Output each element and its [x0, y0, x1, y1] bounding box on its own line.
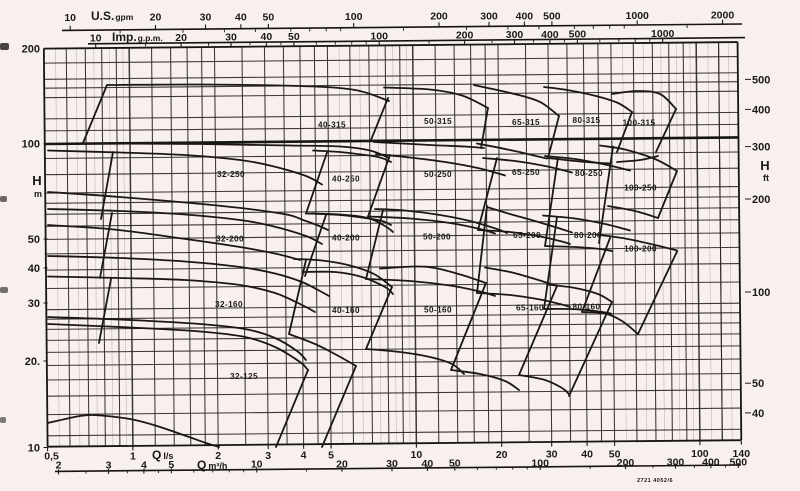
svg-text:20: 20: [150, 12, 162, 24]
svg-text:100-200: 100-200: [624, 244, 657, 253]
svg-text:Qm³/h: Qm³/h: [197, 458, 227, 472]
svg-text:50: 50: [263, 11, 275, 23]
svg-text:80-250: 80-250: [575, 169, 603, 178]
svg-text:50-200: 50-200: [423, 233, 451, 242]
svg-text:200: 200: [430, 11, 448, 23]
svg-text:1000: 1000: [651, 28, 675, 40]
svg-text:50-160: 50-160: [424, 306, 452, 315]
svg-text:Imp.g.p.m.: Imp.g.p.m.: [112, 30, 163, 44]
svg-text:65-315: 65-315: [512, 118, 540, 127]
svg-text:1: 1: [130, 450, 136, 462]
svg-text:40-160: 40-160: [332, 306, 360, 315]
svg-text:40: 40: [28, 263, 40, 275]
svg-text:80-315: 80-315: [573, 116, 601, 125]
svg-text:40-250: 40-250: [332, 175, 360, 184]
svg-text:300: 300: [480, 11, 498, 23]
svg-text:30: 30: [225, 32, 237, 44]
svg-text:65-160: 65-160: [516, 303, 544, 312]
svg-text:100: 100: [370, 30, 388, 42]
svg-text:50-315: 50-315: [424, 117, 452, 126]
svg-text:400: 400: [752, 104, 770, 116]
svg-text:65-200: 65-200: [513, 231, 541, 240]
svg-text:4: 4: [301, 450, 307, 462]
svg-text:10: 10: [64, 12, 76, 24]
svg-text:ft: ft: [763, 173, 769, 183]
svg-text:3: 3: [265, 450, 271, 462]
svg-text:32-125: 32-125: [230, 372, 258, 381]
svg-text:32-200: 32-200: [216, 235, 244, 244]
svg-text:500: 500: [752, 74, 770, 86]
svg-text:50-250: 50-250: [424, 170, 452, 179]
svg-text:40-315: 40-315: [318, 121, 346, 130]
svg-text:50: 50: [288, 31, 300, 43]
svg-text:40-200: 40-200: [332, 233, 360, 242]
svg-text:20.: 20.: [25, 356, 40, 368]
svg-text:32-160: 32-160: [215, 300, 243, 309]
svg-text:65-250: 65-250: [512, 168, 540, 177]
svg-text:200: 200: [752, 194, 770, 206]
svg-text:200: 200: [22, 44, 40, 56]
svg-text:50: 50: [752, 378, 764, 390]
svg-text:40: 40: [235, 11, 247, 23]
svg-text:20: 20: [496, 449, 508, 461]
svg-text:200: 200: [456, 30, 474, 42]
svg-text:20: 20: [175, 32, 187, 44]
svg-text:40: 40: [261, 31, 273, 43]
svg-text:m: m: [34, 189, 42, 199]
svg-text:100: 100: [345, 11, 363, 23]
svg-text:100-250: 100-250: [624, 184, 657, 193]
svg-text:40: 40: [752, 408, 764, 420]
svg-text:300: 300: [752, 142, 770, 154]
svg-text:1000: 1000: [626, 10, 650, 22]
svg-text:32-250: 32-250: [217, 170, 245, 179]
svg-text:2721 4052/6: 2721 4052/6: [637, 478, 673, 484]
svg-text:40: 40: [581, 449, 593, 461]
svg-text:100-315: 100-315: [623, 119, 656, 128]
svg-text:500: 500: [543, 10, 561, 22]
svg-text:H: H: [760, 158, 769, 173]
svg-text:10: 10: [90, 33, 102, 45]
svg-text:30: 30: [28, 298, 40, 310]
svg-text:50: 50: [28, 234, 40, 246]
svg-text:H: H: [32, 173, 41, 188]
svg-text:5: 5: [328, 450, 334, 462]
svg-text:500: 500: [569, 29, 587, 41]
svg-text:100: 100: [22, 139, 40, 151]
svg-text:30: 30: [200, 12, 212, 24]
svg-text:300: 300: [506, 29, 524, 41]
svg-text:U.S.gpm: U.S.gpm: [91, 9, 134, 23]
svg-text:10: 10: [28, 443, 40, 455]
svg-text:400: 400: [516, 10, 534, 22]
svg-text:80-160: 80-160: [573, 303, 601, 312]
svg-text:80-200: 80-200: [574, 231, 602, 240]
svg-text:100: 100: [752, 287, 770, 299]
svg-text:400: 400: [541, 29, 559, 41]
